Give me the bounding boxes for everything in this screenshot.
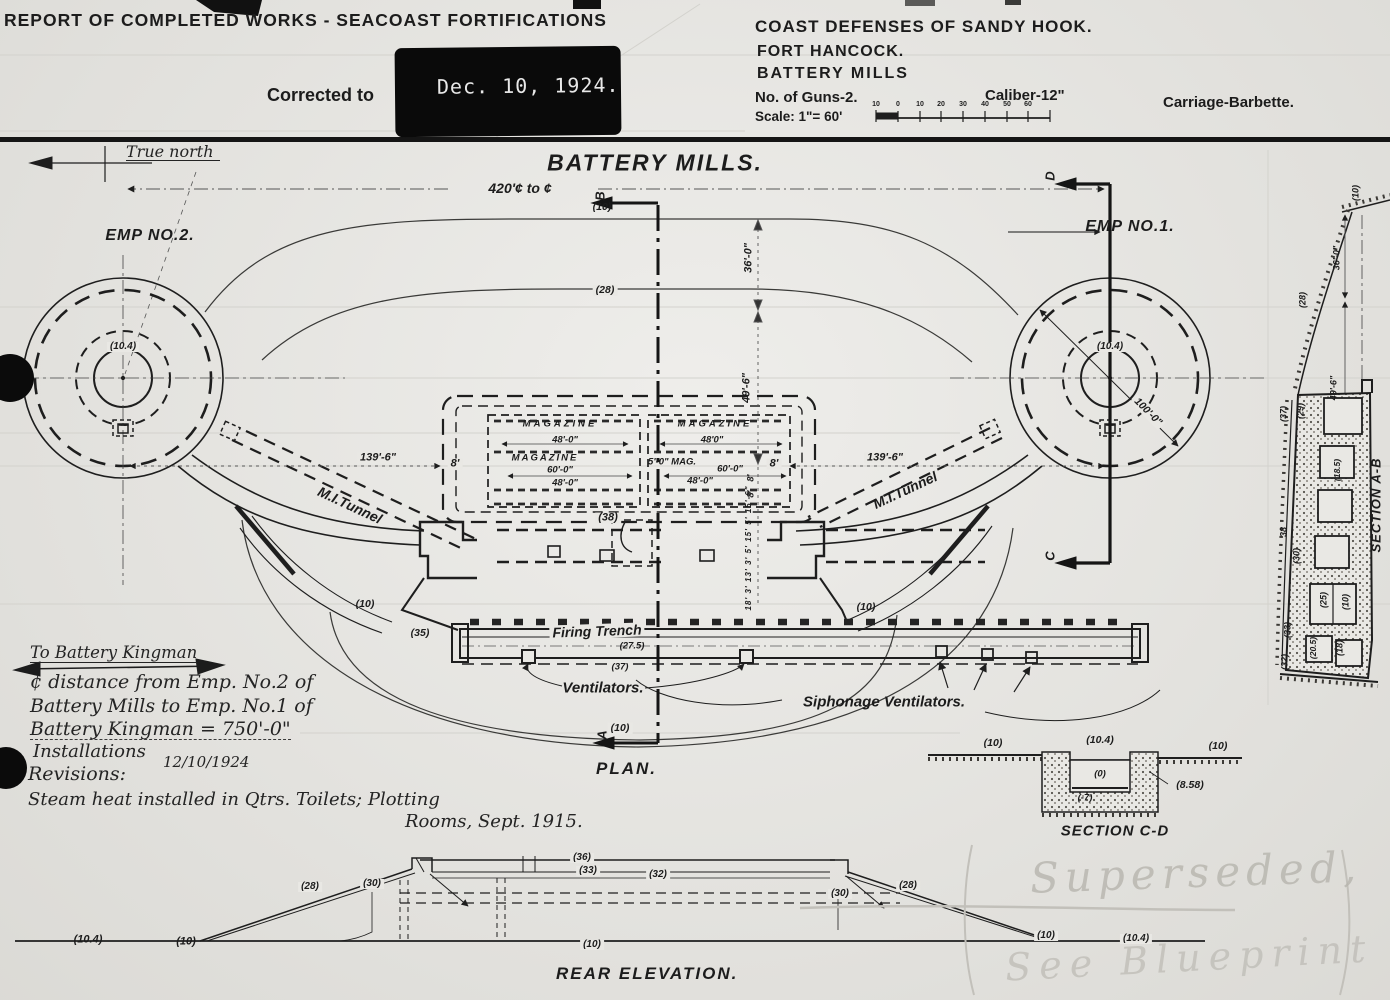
ab-elev-38: 38 xyxy=(1280,527,1289,537)
cd-elev-0: (0) xyxy=(1094,769,1106,779)
ab-elev-30: (30) xyxy=(1293,548,1302,564)
dim-8-left-label: 8' xyxy=(448,459,463,470)
section-marker-b: B xyxy=(594,191,607,200)
trench-275-label: (27.5) xyxy=(620,641,645,651)
ab-dim-36: 36'-0" xyxy=(1333,246,1342,270)
cd-elev-10-right: (10) xyxy=(1209,741,1228,752)
room-dims-label: 18' 3' 13' 3' 5' 15' 5' 15'-6" xyxy=(745,485,753,610)
scale-label: Scale: 1"= 60' xyxy=(755,110,842,124)
note-line4: Installations xyxy=(33,743,146,761)
note-steam1: Steam heat installed in Qtrs. Toilets; P… xyxy=(28,791,440,809)
magazine-right-2-dim-b: 48'-0" xyxy=(687,476,713,486)
emplacement-2 xyxy=(0,255,345,585)
rear-elev-30-left: (30) xyxy=(360,879,384,889)
ab-elev-37: (37) xyxy=(1280,406,1289,422)
ab-elev-29: (29) xyxy=(1297,403,1306,419)
ab-elev-10: (10) xyxy=(1342,594,1351,610)
magazine-left-2-dim-a: 60'-0" xyxy=(547,465,573,475)
corrected-date: Dec. 10, 1924. xyxy=(437,73,620,99)
magazine-right-2: 5'-0" MAG. xyxy=(648,457,696,467)
note-line1: ¢ distance from Emp. No.2 of xyxy=(30,673,313,692)
section-line-cd xyxy=(1008,178,1110,569)
section-cd-title: SECTION C-D xyxy=(1061,824,1170,839)
rear-elev-10-center: (10) xyxy=(580,940,604,950)
rear-elevation-title: REAR ELEVATION. xyxy=(556,965,738,982)
ab-elev-33: (33) xyxy=(1284,622,1293,638)
carriage-label: Carriage-Barbette. xyxy=(1163,95,1294,110)
ab-elev-32: (32) xyxy=(1281,654,1290,670)
section-marker-a: A xyxy=(596,730,609,739)
magazine-left-1-dim: 48'-0" xyxy=(552,435,578,445)
ab-elev-28: (28) xyxy=(1299,292,1308,308)
magazine-left-2-dim-b: 48'-0" xyxy=(552,478,578,488)
note-steam2: Rooms, Sept. 1915. xyxy=(405,813,583,831)
cd-elev-104: (10.4) xyxy=(1086,735,1113,746)
rear-elev-36: (36) xyxy=(570,853,594,863)
magazine-left-1: MAGAZINE xyxy=(523,419,598,429)
ab-dim-49: 49'-6" xyxy=(1330,376,1339,400)
plan-title: PLAN. xyxy=(596,760,657,777)
magazine-left-2: MAGAZINE xyxy=(512,453,579,463)
magazine-right-2-dim-a: 60'-0" xyxy=(717,464,743,474)
magazine-right-1-dim: 48'0" xyxy=(701,435,724,445)
rear-elev-10-left: (10) xyxy=(176,937,196,948)
rear-elev-10-right: (10) xyxy=(1034,931,1058,941)
cd-elev-10-left: (10) xyxy=(984,738,1003,749)
elev-10-trench-right: (10) xyxy=(857,602,876,613)
dim-36-label: 36'-0" xyxy=(744,243,755,273)
firing-trench-label: Firing Trench xyxy=(549,622,645,639)
elev-10-trench-left: (10) xyxy=(356,599,375,610)
section-marker-d: D xyxy=(1044,171,1057,180)
section-ab-title: SECTION A-B xyxy=(1370,457,1383,552)
page-title: BATTERY MILLS. xyxy=(547,152,763,175)
north-arrow xyxy=(30,146,196,374)
section-marker-c: C xyxy=(1044,551,1057,560)
rear-elev-28-left: (28) xyxy=(298,882,322,892)
ab-elev-10-top: (10) xyxy=(1352,185,1361,201)
dim-8a-label: 8' xyxy=(747,474,756,481)
cd-elev-m7: (-7) xyxy=(1078,793,1093,803)
rear-elev-104-left: (10.4) xyxy=(74,935,103,946)
ab-elev-18: (18) xyxy=(1336,640,1345,656)
corrected-date-redaction: Dec. 10, 1924. xyxy=(395,46,622,137)
rear-elevation-drawing xyxy=(15,856,1205,941)
scale-tick-6: 50 xyxy=(1003,101,1011,108)
emp1-label: EMP NO.1. xyxy=(1085,219,1174,235)
ab-elev-205: (20.5) xyxy=(1309,637,1318,659)
ab-elev-185: (18.5) xyxy=(1333,459,1342,481)
dim-420-label: 420'¢ to ¢ xyxy=(485,181,554,195)
report-title: REPORT OF COMPLETED WORKS - SEACOAST FOR… xyxy=(4,12,607,30)
dim-139-right-label: 139'-6" xyxy=(864,453,906,464)
emp1-crest-elev: (10.4) xyxy=(1094,342,1126,352)
scale-tick-7: 60 xyxy=(1024,101,1032,108)
district-title: COAST DEFENSES OF SANDY HOOK. xyxy=(755,18,1093,35)
note-line3: Battery Kingman = 750'-0" xyxy=(30,720,291,740)
ab-elev-25: (25) xyxy=(1320,592,1329,608)
contour-10-top: (10) xyxy=(593,202,612,213)
scale-tick-5: 40 xyxy=(981,101,989,108)
siphonage-label: Siphonage Ventilators. xyxy=(803,695,965,710)
scale-tick-1: 0 xyxy=(896,101,900,108)
true-north-label: True north xyxy=(126,144,220,161)
note-line5: Revisions: xyxy=(28,765,126,784)
corrected-to-label: Corrected to xyxy=(267,86,374,104)
emp2-label: EMP NO.2. xyxy=(105,228,194,244)
rear-elev-30-right: (30) xyxy=(828,889,852,899)
fort-title: FORT HANCOCK. xyxy=(757,44,904,60)
magazine-right-1: MAGAZINE xyxy=(678,419,753,429)
elev-10-bottom: (10) xyxy=(608,723,633,734)
scale-tick-4: 30 xyxy=(959,101,967,108)
contour-28: (28) xyxy=(593,285,618,296)
trench-37-label: (37) xyxy=(609,662,632,672)
scale-tick-2: 10 xyxy=(916,101,924,108)
elev-35-label: (35) xyxy=(411,628,430,639)
note-kingman: To Battery Kingman xyxy=(30,645,197,663)
dim-139-left-label: 139'-6" xyxy=(357,453,399,464)
battery-title: BATTERY MILLS xyxy=(757,66,909,82)
scanned-drawing-page: REPORT OF COMPLETED WORKS - SEACOAST FOR… xyxy=(0,0,1390,1000)
elev-38-label: (38) xyxy=(595,513,621,524)
dim-49-label: 49'-6" xyxy=(742,373,753,403)
guns-label: No. of Guns-2. xyxy=(755,90,858,105)
rear-elev-32: (32) xyxy=(646,870,670,880)
rear-elev-28-right: (28) xyxy=(896,881,920,891)
dim-8-right-label: 8' xyxy=(767,459,782,470)
rear-elev-33: (33) xyxy=(576,866,600,876)
scale-tick-3: 20 xyxy=(937,101,945,108)
cd-elev-858: (8.58) xyxy=(1176,780,1203,791)
note-line2: Battery Mills to Emp. No.1 of xyxy=(30,697,313,716)
note-revision-date: 12/10/1924 xyxy=(163,755,249,770)
scale-bar xyxy=(876,110,1050,122)
magazine-complex xyxy=(402,396,985,630)
ventilators-label: Ventilators. xyxy=(562,681,643,696)
scale-tick-0: 10 xyxy=(872,101,880,108)
emp2-crest-elev: (10.4) xyxy=(107,342,139,352)
vertical-dims xyxy=(754,220,762,605)
